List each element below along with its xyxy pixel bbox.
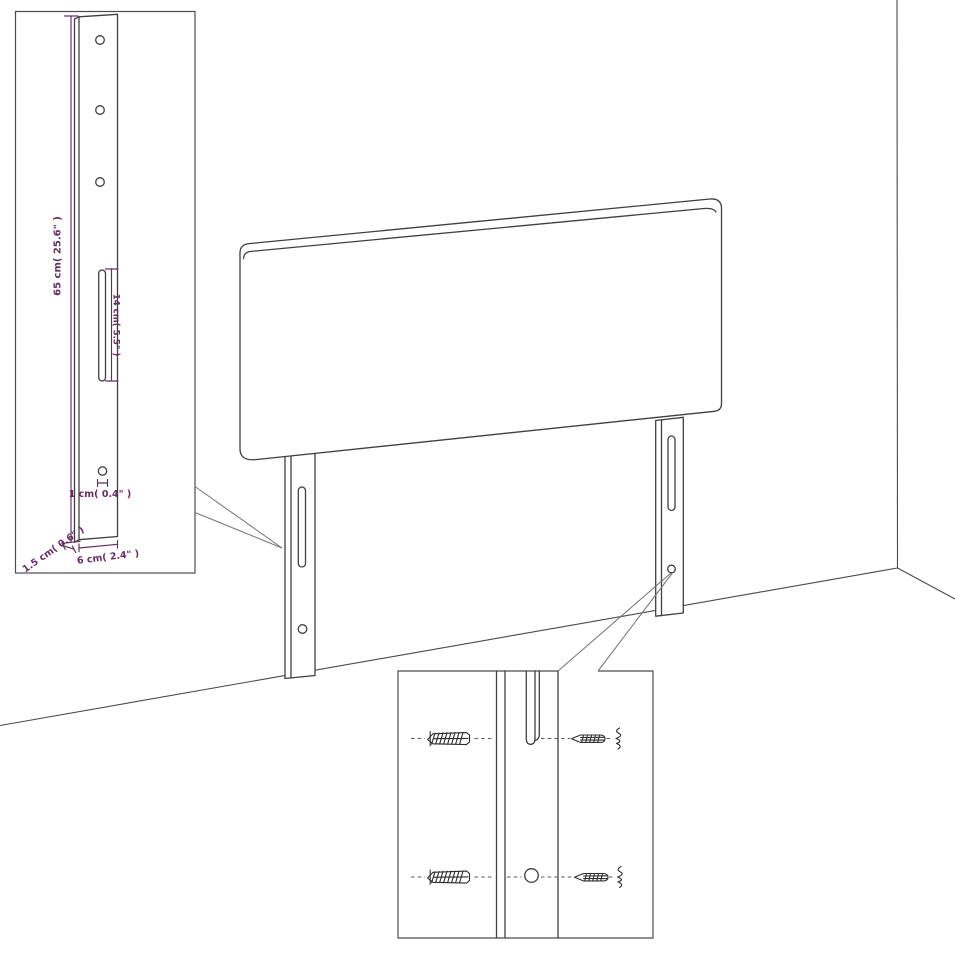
wall-corner-line [897, 0, 898, 568]
right-leg-body [656, 417, 684, 616]
callout-lines [195, 487, 672, 672]
hole-to-detail-leader-right [598, 574, 672, 672]
left-mounting-leg [285, 448, 315, 679]
dim-slot-label: 14 cm( 5.5" ) [111, 294, 121, 357]
right-mounting-leg [656, 417, 684, 616]
dim-hole-label: 1 cm( 0.4" ) [69, 489, 132, 500]
inset-leg-detail-box: 65 cm( 25.6" ) 14 cm( 5.5" ) 1 cm( 0.4" … [16, 12, 196, 576]
hole-to-detail-leader-left [558, 573, 671, 671]
inset-to-leg-leader-upper [195, 487, 282, 549]
left-leg-body [285, 448, 315, 679]
hardware-detail-box [398, 671, 653, 938]
headboard-panel [240, 199, 722, 460]
diagram-canvas: 65 cm( 25.6" ) 14 cm( 5.5" ) 1 cm( 0.4" … [0, 0, 955, 955]
headboard-assembly-diagram: 65 cm( 25.6" ) 14 cm( 5.5" ) 1 cm( 0.4" … [0, 0, 955, 955]
headboard-outline [240, 199, 722, 460]
dim-height-label: 65 cm( 25.6" ) [53, 216, 64, 296]
floor-line-right [898, 568, 955, 599]
detail-box-fill [398, 671, 653, 938]
